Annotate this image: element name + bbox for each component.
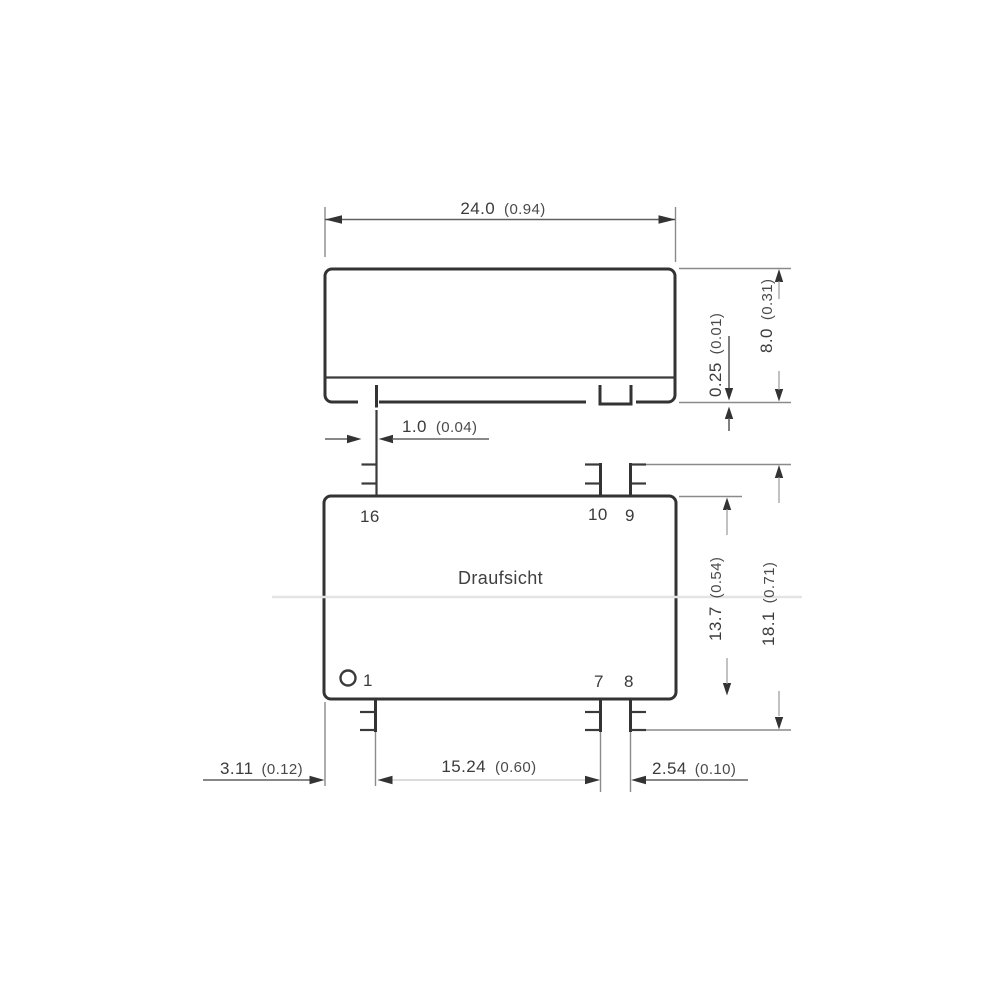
dim-depth-arrow-down <box>723 683 731 696</box>
dim-standoff-label: 0.25(0.01) <box>706 313 725 397</box>
dim-height-arrow-up <box>775 269 783 282</box>
dim-depth-arrow-up <box>723 498 731 511</box>
dim-height-arrow-down <box>775 389 783 402</box>
dim-pitch-label: 2.54(0.10) <box>652 759 736 778</box>
dim-depth-mm: 13.7 <box>706 606 725 641</box>
pin-16-label: 16 <box>360 507 380 526</box>
pin-8-label: 8 <box>624 672 634 691</box>
dim-width-arrow-right <box>659 215 676 224</box>
dim-rowspan-label: 15.24(0.60) <box>441 757 536 776</box>
side-view-body <box>325 269 675 402</box>
dim-standoff-arrow-down <box>725 388 733 401</box>
dim-pitch-mm: 2.54 <box>652 759 687 778</box>
pin-9-label: 9 <box>625 506 635 525</box>
dim-standoff-arrow-up <box>725 407 733 420</box>
dim-pin-dia-arrow-left <box>379 435 394 443</box>
dim-offset-label: 3.11(0.12) <box>220 759 303 778</box>
dim-pitch-arrow <box>631 776 646 784</box>
dim-overall-arrow-up <box>775 465 783 478</box>
dim-width-arrow-left <box>325 215 342 224</box>
dim-overall-label: 18.1(0.71) <box>759 562 778 646</box>
side-view-pin-gap-right <box>586 396 636 408</box>
dimension-drawing: 24.0(0.94) 0.25(0.01) 8.0(0.31) 1.0(0.04… <box>0 0 1000 1000</box>
dim-depth-inch: (0.54) <box>708 557 725 599</box>
dim-overall-inch: (0.71) <box>761 562 778 604</box>
dim-depth-label: 13.7(0.54) <box>706 557 725 641</box>
dim-overall-mm: 18.1 <box>759 611 778 646</box>
dim-pin-dia-mm: 1.0 <box>402 417 427 436</box>
dim-rowspan-inch: (0.60) <box>495 759 537 776</box>
pin-10-label: 10 <box>588 505 608 524</box>
dim-rowspan-mm: 15.24 <box>441 757 486 776</box>
dim-pin-dia-inch: (0.04) <box>436 419 478 436</box>
dim-width-label: 24.0(0.94) <box>460 199 545 218</box>
dim-height-label: 8.0(0.31) <box>757 279 776 353</box>
top-view-label: Draufsicht <box>458 568 543 588</box>
dim-overall-arrow-down <box>775 717 783 730</box>
dim-rowspan-arrow-left <box>378 776 393 784</box>
dim-height-mm: 8.0 <box>757 328 776 353</box>
dim-height-inch: (0.31) <box>759 279 776 321</box>
dim-rowspan-arrow-right <box>585 776 600 784</box>
technical-drawing-page: 24.0(0.94) 0.25(0.01) 8.0(0.31) 1.0(0.04… <box>0 0 1000 1000</box>
dim-width-inch: (0.94) <box>504 201 546 218</box>
dim-pitch-inch: (0.10) <box>695 761 737 778</box>
dim-offset-mm: 3.11 <box>220 759 253 778</box>
dim-pin-dia-arrow-right <box>347 435 362 443</box>
pin-7-label: 7 <box>594 672 604 691</box>
dim-width-mm: 24.0 <box>460 199 495 218</box>
dim-standoff-mm: 0.25 <box>706 362 725 397</box>
dim-offset-inch: (0.12) <box>261 761 303 778</box>
dim-pin-dia-label: 1.0(0.04) <box>402 417 477 436</box>
dim-offset-arrow <box>310 776 325 784</box>
dim-standoff-inch: (0.01) <box>708 313 725 355</box>
pin-1-label: 1 <box>363 671 373 690</box>
